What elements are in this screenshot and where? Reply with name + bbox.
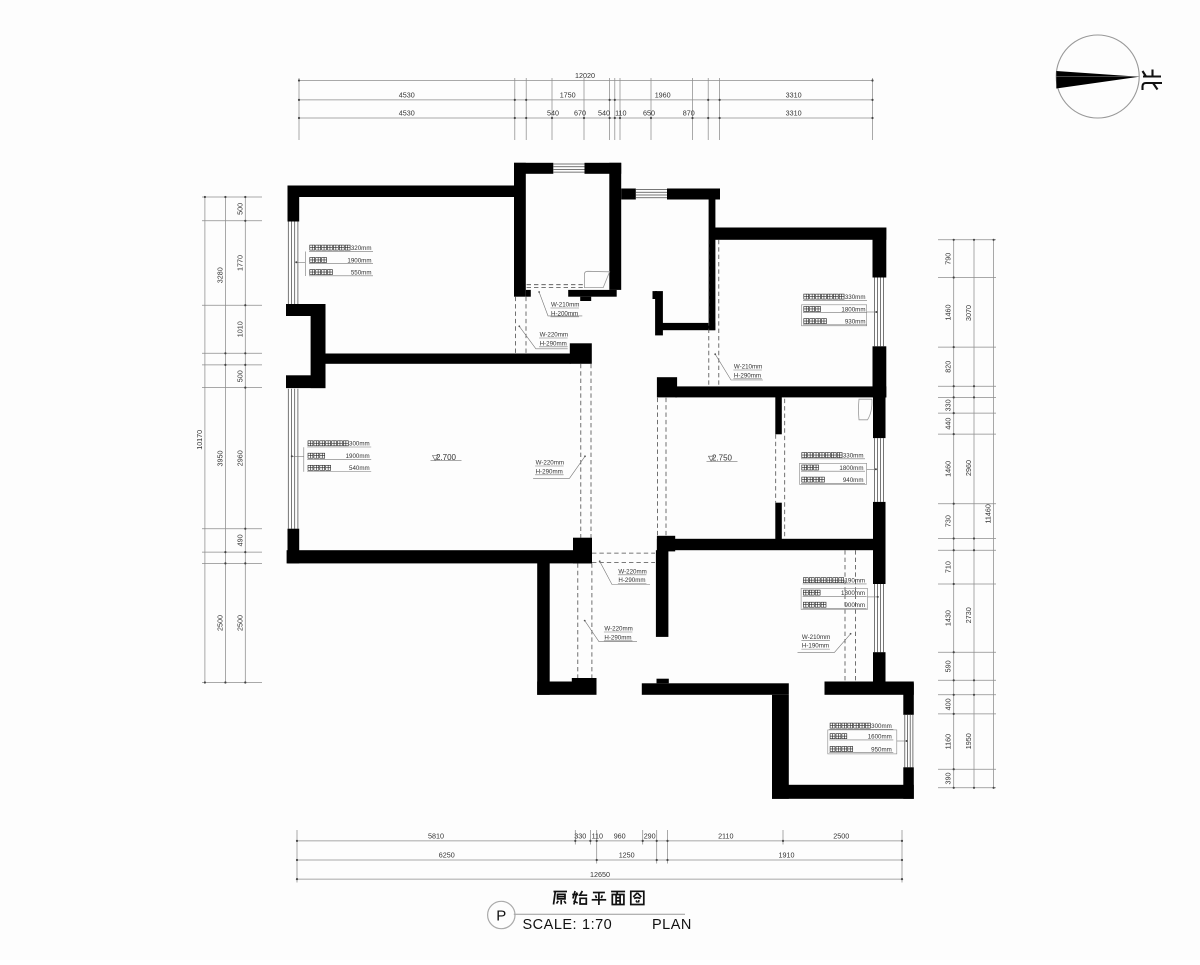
svg-text:4530: 4530 xyxy=(399,109,415,118)
svg-text:900mm: 900mm xyxy=(844,602,865,609)
svg-text:330: 330 xyxy=(574,832,586,841)
svg-text:390: 390 xyxy=(944,773,953,785)
svg-text:H-200mm: H-200mm xyxy=(551,310,578,317)
svg-text:W-220mm: W-220mm xyxy=(618,568,646,575)
svg-text:12020: 12020 xyxy=(575,71,595,80)
svg-text:960: 960 xyxy=(614,832,626,841)
svg-text:10170: 10170 xyxy=(195,430,204,450)
svg-text:1770: 1770 xyxy=(235,255,244,271)
svg-text:3950: 3950 xyxy=(215,451,224,467)
svg-text:4530: 4530 xyxy=(399,90,415,99)
svg-text:540mm: 540mm xyxy=(349,465,370,472)
svg-text:SCALE:: SCALE: xyxy=(523,917,578,933)
svg-text:330: 330 xyxy=(944,399,953,411)
svg-text:1800mm: 1800mm xyxy=(839,465,863,472)
svg-text:1910: 1910 xyxy=(779,851,795,860)
svg-text:330mm: 330mm xyxy=(845,294,866,301)
svg-text:110: 110 xyxy=(615,109,626,118)
svg-text:2500: 2500 xyxy=(235,615,244,631)
svg-text:1010: 1010 xyxy=(235,321,244,337)
svg-text:2500: 2500 xyxy=(833,832,849,841)
svg-text:1250: 1250 xyxy=(619,851,635,860)
svg-text:300mm: 300mm xyxy=(871,723,892,730)
svg-text:H-290mm: H-290mm xyxy=(536,468,563,475)
svg-text:820: 820 xyxy=(944,361,953,373)
svg-text:1:70: 1:70 xyxy=(582,917,612,933)
svg-text:H-290mm: H-290mm xyxy=(604,634,631,641)
svg-text:440: 440 xyxy=(944,418,953,430)
svg-text:2960: 2960 xyxy=(964,460,973,476)
svg-text:940mm: 940mm xyxy=(843,477,864,484)
svg-text:1460: 1460 xyxy=(944,461,953,477)
svg-text:1430: 1430 xyxy=(944,610,953,626)
svg-text:650: 650 xyxy=(643,109,655,118)
svg-text:1600mm: 1600mm xyxy=(868,734,892,741)
svg-text:1460: 1460 xyxy=(944,305,953,321)
svg-text:3280: 3280 xyxy=(215,267,224,283)
svg-text:11460: 11460 xyxy=(984,504,993,523)
svg-text:500: 500 xyxy=(235,203,244,215)
svg-text:1160: 1160 xyxy=(944,734,953,749)
svg-text:290: 290 xyxy=(644,832,656,841)
svg-text:190mm: 190mm xyxy=(844,578,865,585)
svg-text:550mm: 550mm xyxy=(351,270,372,277)
svg-text:5810: 5810 xyxy=(428,832,444,841)
svg-text:2730: 2730 xyxy=(964,607,973,623)
svg-text:12650: 12650 xyxy=(590,870,610,879)
svg-text:3310: 3310 xyxy=(786,90,802,99)
svg-text:1900mm: 1900mm xyxy=(347,257,371,264)
svg-text:W-210mm: W-210mm xyxy=(802,634,830,641)
svg-text:W-220mm: W-220mm xyxy=(536,460,564,467)
svg-text:H-190mm: H-190mm xyxy=(802,643,829,650)
svg-text:W-210mm: W-210mm xyxy=(734,364,762,371)
svg-text:1800mm: 1800mm xyxy=(841,306,865,313)
svg-text:670: 670 xyxy=(574,109,586,118)
svg-text:W-220mm: W-220mm xyxy=(604,626,632,633)
svg-text:320mm: 320mm xyxy=(351,245,372,252)
svg-text:W-210mm: W-210mm xyxy=(551,302,579,309)
svg-text:950mm: 950mm xyxy=(871,746,892,753)
svg-text:540: 540 xyxy=(598,109,610,118)
svg-text:3310: 3310 xyxy=(786,109,802,118)
svg-text:110: 110 xyxy=(592,832,603,841)
svg-text:P: P xyxy=(496,908,506,925)
svg-text:1950: 1950 xyxy=(964,733,973,749)
svg-text:1800mm: 1800mm xyxy=(841,590,865,597)
svg-text:590: 590 xyxy=(944,660,953,672)
svg-text:790: 790 xyxy=(944,253,953,265)
svg-text:H-290mm: H-290mm xyxy=(618,577,645,584)
svg-text:540: 540 xyxy=(547,109,559,118)
svg-text:2500: 2500 xyxy=(215,615,224,631)
svg-text:710: 710 xyxy=(944,561,953,573)
svg-text:3070: 3070 xyxy=(964,305,973,321)
svg-text:870: 870 xyxy=(683,109,695,118)
svg-text:H-290mm: H-290mm xyxy=(540,340,567,347)
svg-text:W-220mm: W-220mm xyxy=(540,332,568,339)
svg-text:2110: 2110 xyxy=(718,832,733,841)
svg-text:1900mm: 1900mm xyxy=(346,453,370,460)
svg-text:1750: 1750 xyxy=(560,90,576,99)
svg-text:730: 730 xyxy=(944,515,953,527)
svg-text:H-290mm: H-290mm xyxy=(734,372,761,379)
svg-text:300mm: 300mm xyxy=(349,441,370,448)
svg-text:500: 500 xyxy=(235,370,244,382)
svg-text:PLAN: PLAN xyxy=(652,917,692,933)
svg-text:330mm: 330mm xyxy=(843,453,864,460)
svg-text:490: 490 xyxy=(235,534,244,546)
svg-text:400: 400 xyxy=(944,698,953,710)
svg-text:2960: 2960 xyxy=(235,450,244,466)
svg-text:6250: 6250 xyxy=(439,851,455,860)
svg-text:1960: 1960 xyxy=(655,90,671,99)
svg-text:930mm: 930mm xyxy=(845,319,866,326)
